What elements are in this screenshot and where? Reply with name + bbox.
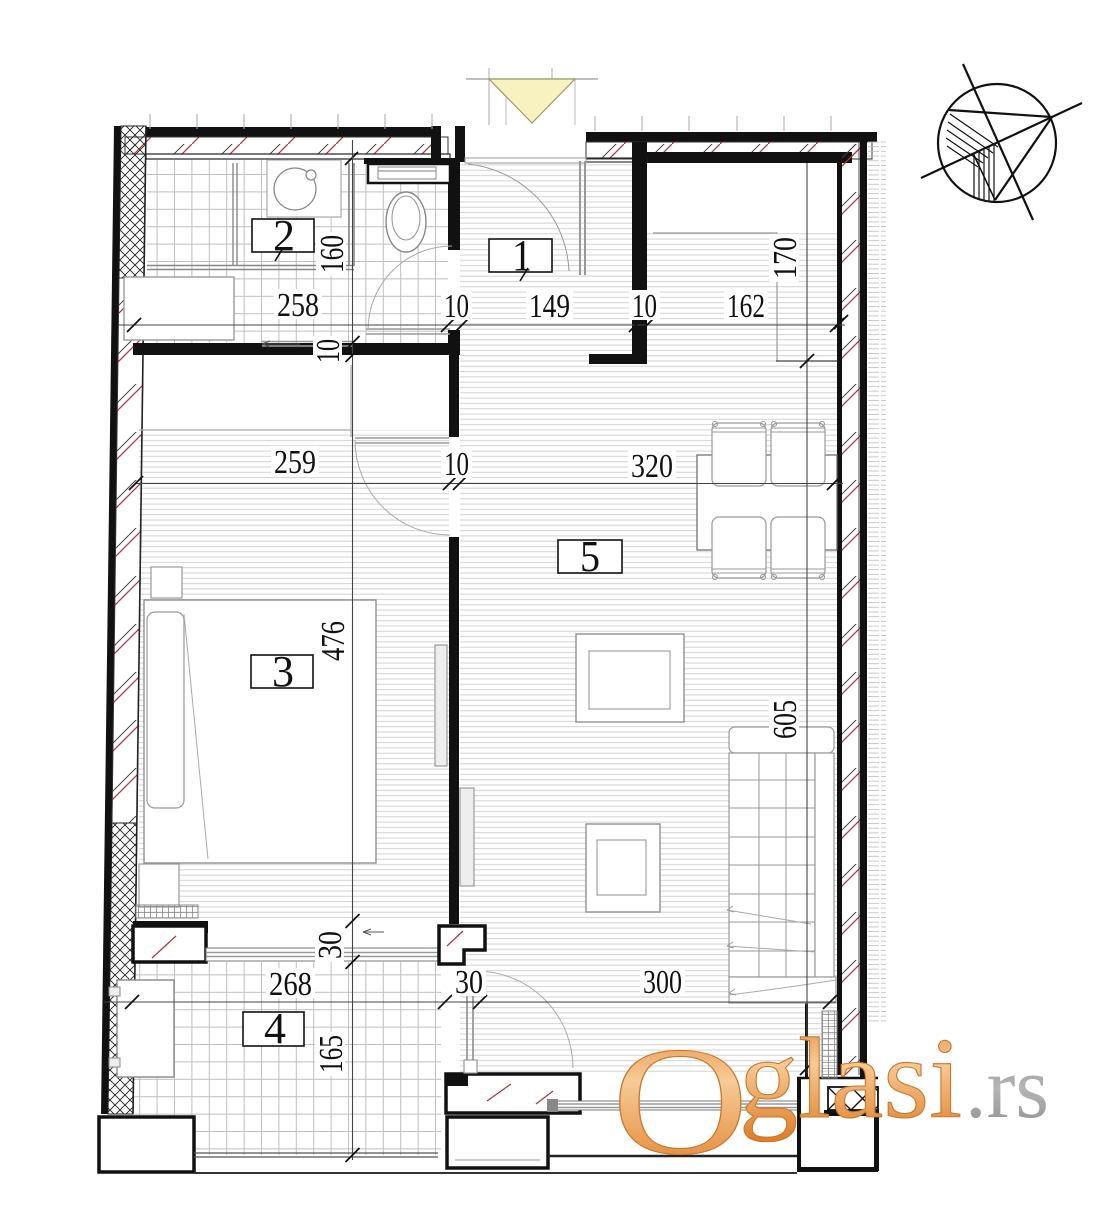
svg-text:165: 165	[313, 1035, 350, 1073]
svg-text:149: 149	[529, 288, 570, 325]
svg-text:30: 30	[312, 931, 349, 959]
svg-text:10: 10	[310, 339, 347, 363]
svg-text:160: 160	[314, 235, 351, 273]
svg-text:O: O	[612, 1016, 749, 1187]
svg-text:259: 259	[274, 444, 316, 481]
svg-text:3: 3	[272, 647, 294, 696]
svg-text:162: 162	[727, 288, 765, 325]
svg-text:5: 5	[580, 532, 600, 581]
svg-text:320: 320	[631, 448, 673, 485]
svg-text:1: 1	[512, 231, 532, 280]
svg-text:268: 268	[269, 966, 312, 1003]
svg-text:2: 2	[273, 211, 295, 260]
svg-text:4: 4	[264, 1004, 286, 1053]
svg-text:.rs: .rs	[965, 1040, 1049, 1137]
svg-text:170: 170	[767, 237, 804, 279]
svg-text:10: 10	[444, 288, 469, 325]
svg-text:10: 10	[632, 288, 657, 325]
svg-text:glasi: glasi	[739, 1015, 962, 1142]
svg-text:258: 258	[277, 287, 319, 324]
svg-text:476: 476	[315, 621, 352, 661]
svg-text:10: 10	[444, 446, 469, 483]
svg-text:300: 300	[643, 964, 682, 1001]
svg-text:605: 605	[767, 700, 804, 739]
svg-text:30: 30	[455, 964, 483, 1001]
